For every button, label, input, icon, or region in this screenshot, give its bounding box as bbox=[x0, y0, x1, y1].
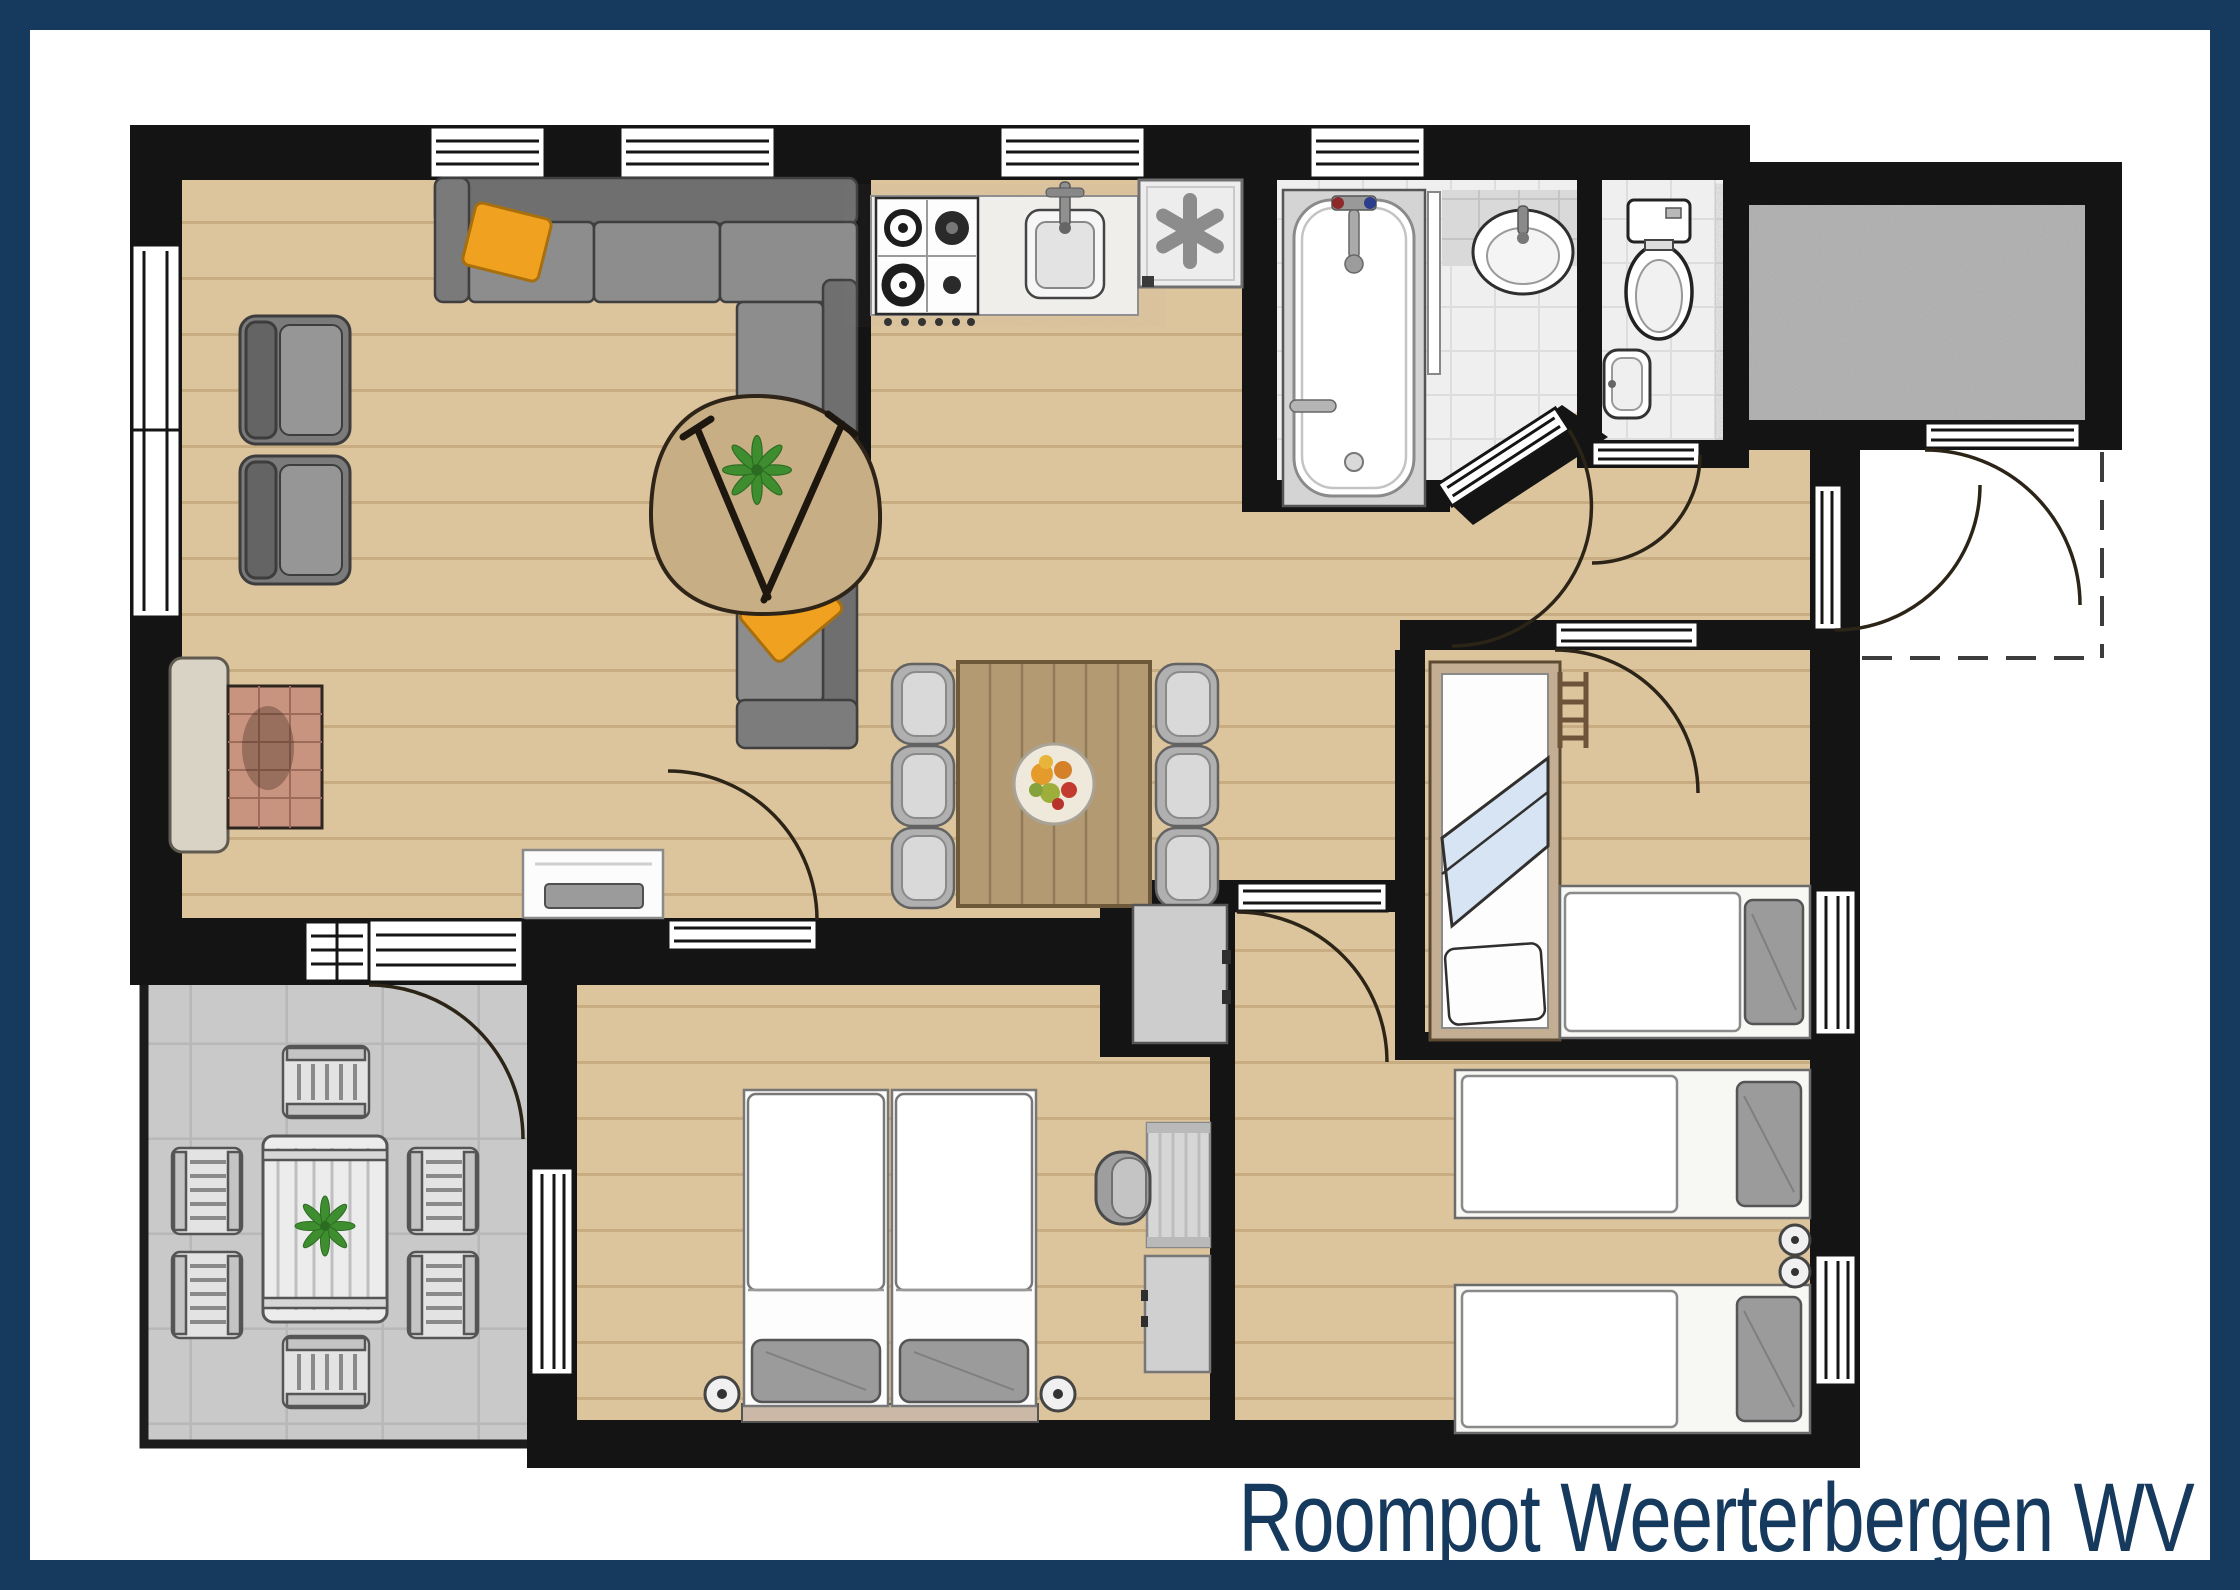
dining-chair bbox=[1156, 746, 1218, 826]
window bbox=[430, 127, 545, 178]
wardrobe bbox=[1133, 905, 1231, 1043]
wall bbox=[1242, 180, 1277, 512]
toilet bbox=[1626, 200, 1692, 339]
wall bbox=[1577, 180, 1602, 440]
terrace-chair bbox=[408, 1252, 478, 1338]
wall bbox=[130, 125, 1750, 180]
window bbox=[132, 245, 180, 617]
wall bbox=[2085, 162, 2122, 450]
plant-icon bbox=[723, 436, 792, 505]
radiator bbox=[523, 850, 663, 918]
fireplace bbox=[170, 658, 322, 852]
terrace-chair bbox=[172, 1148, 242, 1234]
armchair bbox=[240, 316, 350, 444]
window bbox=[1310, 127, 1425, 178]
window bbox=[531, 1168, 573, 1375]
fruit-bowl bbox=[1014, 744, 1094, 824]
bathtub bbox=[1283, 190, 1425, 506]
freezer-icon bbox=[1139, 180, 1242, 287]
plant-icon bbox=[295, 1196, 355, 1256]
dining-chair bbox=[1156, 664, 1218, 744]
window bbox=[1000, 127, 1145, 178]
cabinet bbox=[1141, 1256, 1210, 1372]
wall bbox=[1723, 162, 1749, 468]
dining-area bbox=[892, 662, 1218, 908]
shower-screen bbox=[1428, 192, 1440, 374]
dining-chair bbox=[892, 746, 954, 826]
door-hall-exterior bbox=[1814, 485, 1980, 630]
armchair bbox=[240, 456, 350, 584]
floor-plan bbox=[0, 0, 2240, 1590]
single-bed bbox=[1560, 886, 1810, 1038]
window bbox=[1815, 1255, 1856, 1385]
desk-chair bbox=[1096, 1152, 1150, 1224]
window bbox=[1925, 423, 2080, 448]
window bbox=[620, 127, 775, 178]
canopy-outline bbox=[1862, 452, 2102, 658]
storage-floor-texture bbox=[1749, 205, 2085, 420]
dining-chair bbox=[1156, 828, 1218, 908]
bunk-bed bbox=[1430, 662, 1560, 1040]
terrace-chair bbox=[408, 1148, 478, 1234]
terrace-chair bbox=[172, 1252, 242, 1338]
hand-basin bbox=[1604, 350, 1650, 418]
coffee-table bbox=[651, 396, 880, 614]
terrace-chair bbox=[283, 1046, 369, 1118]
wall bbox=[1395, 650, 1425, 1060]
wall bbox=[1210, 1057, 1235, 1420]
floor-plan-page: Roompot Weerterbergen WV bbox=[0, 0, 2240, 1590]
window bbox=[305, 922, 369, 981]
plan-title: Roompot Weerterbergen WV bbox=[1239, 1466, 2194, 1570]
door-storage-exterior bbox=[1925, 450, 2080, 605]
single-bed bbox=[1455, 1070, 1810, 1218]
dining-chair bbox=[892, 664, 954, 744]
terrace-table bbox=[263, 1136, 387, 1322]
desk bbox=[1147, 1123, 1210, 1247]
stove-icon bbox=[876, 198, 978, 326]
terrace-chair bbox=[283, 1336, 369, 1408]
wall bbox=[1723, 162, 2122, 205]
single-bed bbox=[1455, 1285, 1810, 1433]
dining-chair bbox=[892, 828, 954, 908]
wall bbox=[130, 918, 1110, 985]
window bbox=[1815, 890, 1856, 1035]
